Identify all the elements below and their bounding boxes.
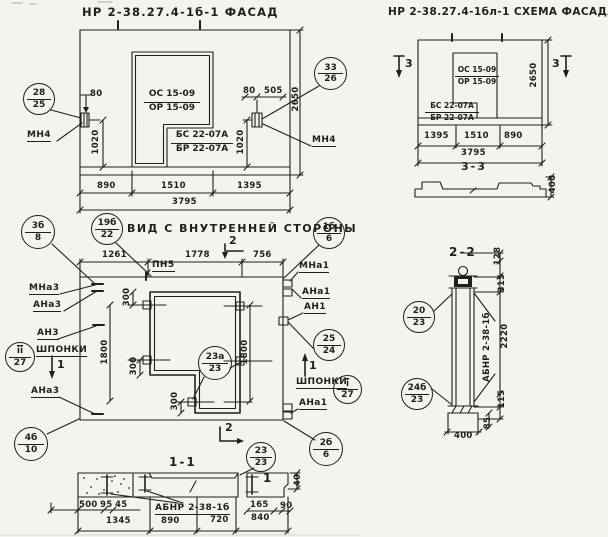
dim-1395: 1395 bbox=[237, 181, 262, 191]
section-2-2-title: 2-2 bbox=[449, 245, 477, 259]
scheme-block-mark: БС 22-07А БР 22-07А bbox=[425, 101, 479, 123]
callout-balloon-23a-23: 23а 23 bbox=[198, 346, 232, 380]
section-1-cut-marker: 1 bbox=[263, 471, 271, 485]
dim-1261: 1261 bbox=[102, 250, 127, 260]
dim-3795-scheme: 3795 bbox=[461, 148, 486, 158]
dim-1778: 1778 bbox=[185, 250, 210, 260]
anchor-label-mn4-left: МН4 bbox=[27, 130, 51, 142]
label-ana1-bottom: АНа1 bbox=[299, 398, 327, 410]
strip-label-pn5: ПН5 bbox=[152, 260, 175, 272]
dim-890-scheme: 890 bbox=[504, 131, 523, 141]
dim-500: 500 bbox=[79, 500, 98, 510]
dim-2220: 2220 bbox=[500, 314, 510, 358]
dim-1510: 1510 bbox=[161, 181, 186, 191]
dim-90: 90 bbox=[280, 501, 292, 511]
section-3-3-title: 3-3 bbox=[461, 160, 487, 173]
callout-balloon-ii-27: ii 27 bbox=[5, 342, 35, 372]
dim-115: 115 bbox=[497, 377, 507, 421]
dim-80-left: 80 bbox=[90, 89, 102, 99]
dim-1020-right: 1020 bbox=[236, 120, 246, 164]
dim-1800-left: 1800 bbox=[100, 330, 110, 374]
dim-2650-scheme: 2650 bbox=[529, 53, 539, 97]
label-ana1-top: АНа1 bbox=[302, 287, 330, 299]
section-1-1-title: 1-1 bbox=[169, 455, 197, 469]
section-1-marker-up: 1 bbox=[309, 359, 317, 372]
facade-title: НР 2-38.27.4-1б-1 ФАСАД bbox=[82, 5, 279, 19]
section-2-marker-top: 2 bbox=[229, 234, 237, 247]
callout-balloon-25-24: 25 24 bbox=[313, 329, 345, 361]
dim-890: 890 bbox=[97, 181, 116, 191]
section-1-marker-down: 1 bbox=[57, 358, 65, 371]
beam-label-2-2: АБНР 2-38-1б bbox=[482, 305, 492, 389]
dim-40: 40 bbox=[293, 458, 303, 502]
anchor-label-mn4-right: МН4 bbox=[312, 135, 336, 147]
scheme-linework bbox=[394, 34, 571, 200]
dim-165: 165 bbox=[250, 500, 269, 510]
label-ana3-top: АНа3 bbox=[33, 300, 61, 312]
dim-3795-facade: 3795 bbox=[172, 197, 197, 207]
dim-756: 756 bbox=[253, 250, 272, 260]
dim-1345: 1345 bbox=[106, 516, 131, 526]
label-an3: АН3 bbox=[37, 328, 59, 340]
callout-balloon-2b-6: 2б 6 bbox=[309, 432, 343, 466]
callout-balloon-20-23: 20 23 bbox=[403, 301, 435, 333]
dim-85: 85 bbox=[483, 401, 493, 445]
beam-label-1-1: АБНР 2-38-1б bbox=[155, 503, 230, 515]
facade-block-mark: БС 22-07А БР 22-07А bbox=[171, 130, 233, 155]
label-mna1: МНа1 bbox=[299, 261, 329, 273]
dim-720: 720 bbox=[210, 515, 229, 525]
dim-45: 45 bbox=[115, 500, 127, 510]
dim-890-s11: 890 bbox=[161, 516, 180, 526]
dim-1800-right: 1800 bbox=[240, 330, 250, 374]
label-ana3-bottom: АНа3 bbox=[31, 386, 59, 398]
dim-300-mid-left: 300 bbox=[129, 344, 139, 388]
section-2-marker-bottom: 2 bbox=[225, 421, 233, 434]
dim-1020-left: 1020 bbox=[91, 120, 101, 164]
section-3-marker-left: 3 bbox=[405, 57, 413, 70]
dim-1510-scheme: 1510 bbox=[464, 131, 489, 141]
label-mna3: МНа3 bbox=[29, 283, 59, 295]
callout-balloon-24b-23: 24б 23 bbox=[401, 378, 433, 410]
callout-balloon-i-27: i 27 bbox=[333, 375, 362, 404]
dim-400-profile: 400 bbox=[548, 162, 558, 206]
inner-view-linework bbox=[47, 243, 319, 444]
section-3-marker-right: 3 bbox=[552, 57, 560, 70]
dim-300-top-left: 300 bbox=[122, 275, 132, 319]
dim-400-s22: 400 bbox=[454, 431, 473, 441]
scheme-title: НР 2-38.27.4-1бл-1 СХЕМА ФАСАДА bbox=[388, 6, 608, 18]
dim-2650-facade: 2650 bbox=[291, 77, 301, 121]
callout-balloon-23-23: 23 23 bbox=[246, 442, 276, 472]
facade-window-mark: ОС 15-09 ОР 15-09 bbox=[144, 89, 200, 114]
callout-balloon-28-25: 28 25 bbox=[23, 83, 55, 115]
dim-315: 315 bbox=[497, 261, 507, 305]
dim-840: 840 bbox=[251, 513, 270, 523]
callout-balloon-19b-22: 19б 22 bbox=[91, 213, 123, 245]
callout-balloon-1b-6: 1б 6 bbox=[313, 217, 345, 249]
dim-505: 505 bbox=[264, 86, 283, 96]
callout-balloon-33-26: 33 26 bbox=[314, 57, 347, 90]
callout-balloon-4b-10: 4б 10 bbox=[14, 427, 48, 461]
dim-80-right: 80 bbox=[243, 86, 255, 96]
label-shponki-left: ШПОНКИ bbox=[36, 345, 87, 357]
callout-balloon-3b-8: 3б 8 bbox=[21, 215, 55, 249]
scheme-window-mark: ОС 15-09 ОР 15-09 bbox=[455, 65, 499, 87]
blueprint-canvas: НР 2-38.27.4-1б-1 ФАСАД 28 25 33 26 МН4 … bbox=[0, 0, 608, 537]
dim-300-bottom: 300 bbox=[170, 379, 180, 423]
dim-95: 95 bbox=[100, 500, 112, 510]
dim-1395-scheme: 1395 bbox=[424, 131, 449, 141]
label-an1: АН1 bbox=[304, 302, 326, 314]
